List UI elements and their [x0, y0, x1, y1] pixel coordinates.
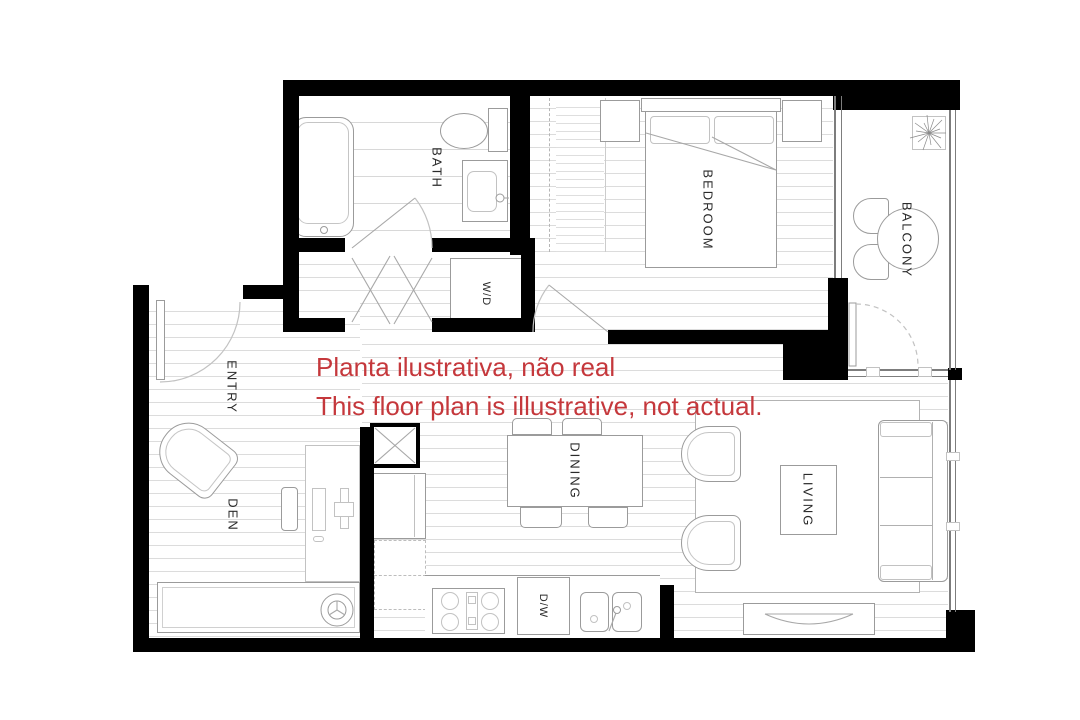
wall-bath-bottom-left	[283, 238, 345, 252]
living-window-mullion-2	[946, 522, 960, 531]
bathtub	[292, 117, 354, 237]
floor-plan: BATH BEDROOM BALCONY ENTRY DEN DINING LI…	[0, 0, 1080, 720]
pillow-left	[650, 116, 710, 144]
dining-chair-bottom-2	[588, 507, 628, 528]
sofa-armrest-bottom	[880, 565, 932, 580]
living-window-line-1	[949, 380, 951, 612]
balcony-bottom-window-line-1	[848, 369, 948, 371]
burner-1	[441, 592, 459, 610]
balcony-rail-line-2	[955, 110, 956, 370]
label-living: LIVING	[801, 473, 816, 528]
label-den: DEN	[226, 498, 241, 531]
wall-bath-closet	[510, 80, 530, 255]
closet-rod-dashed-line	[549, 98, 550, 252]
sofa-back-line	[932, 422, 933, 580]
sink-basin-left	[580, 592, 609, 632]
nightstand-left	[600, 100, 640, 142]
balcony-floor	[848, 332, 948, 380]
burner-2	[441, 613, 459, 631]
dining-chair-bottom-1	[520, 507, 562, 528]
toilet-tank	[488, 108, 508, 152]
wall-bedroom-bottom	[608, 330, 783, 344]
burner-4	[481, 613, 499, 631]
disclaimer-line-1: Planta ilustrativa, não real	[316, 352, 615, 383]
pillow-right	[714, 116, 774, 144]
label-bedroom: BEDROOM	[701, 169, 716, 250]
bedroom-balcony-window-line-1	[834, 96, 836, 278]
balcony-bottom-window-line-2	[848, 376, 948, 377]
desk-mouse	[313, 536, 324, 542]
balcony-window-mullion-2	[918, 367, 932, 377]
desk-monitor	[312, 488, 326, 531]
nightstand-right	[782, 100, 822, 142]
label-dining: DINING	[568, 442, 583, 500]
wall-bottom	[133, 638, 975, 652]
living-armchair-1	[681, 426, 741, 482]
sofa-cushion-line-2	[880, 525, 932, 526]
balcony-window-mullion-1	[866, 367, 880, 377]
wall-kitchen-divider	[660, 585, 674, 638]
den-credenza	[157, 582, 360, 633]
sink-drain-right	[623, 602, 631, 610]
wall-top	[283, 80, 833, 96]
entry-door-leaf	[156, 300, 165, 380]
counter-dashed-line	[374, 575, 426, 576]
sink-drain-left	[590, 615, 598, 623]
label-washer-dryer: W/D	[480, 282, 492, 306]
bed-headboard	[641, 98, 781, 112]
living-window-line-2	[955, 380, 956, 612]
disclaimer-line-2: This floor plan is illustrative, not act…	[316, 391, 763, 422]
fridge-door-line	[414, 475, 415, 537]
tv-console	[743, 603, 875, 635]
desk-chair	[281, 487, 298, 531]
toilet-bowl	[440, 113, 488, 149]
wall-bedroom-balcony-a	[828, 278, 848, 334]
wall-hall-bottom-right	[432, 318, 535, 332]
sink-basin-right	[612, 592, 642, 632]
burner-3	[481, 592, 499, 610]
stove-knob-2	[468, 617, 476, 625]
wall-hall-bottom-left	[283, 318, 345, 332]
label-balcony: BALCONY	[900, 202, 915, 278]
wall-bottom-right-block	[946, 610, 975, 638]
sofa-armrest-top	[880, 422, 932, 437]
bedroom-balcony-window-line-2	[841, 96, 842, 278]
plant-pot	[912, 116, 946, 150]
label-bath: BATH	[430, 147, 445, 189]
wall-top-right-block	[833, 80, 960, 110]
wall-left	[133, 285, 149, 652]
living-armchair-2	[681, 515, 741, 571]
sofa	[878, 420, 948, 582]
label-entry: ENTRY	[225, 360, 240, 414]
refrigerator	[368, 473, 426, 539]
closet-shelves	[556, 100, 604, 252]
sofa-cushion-line-1	[880, 477, 932, 478]
wall-wd-right	[521, 238, 535, 332]
balcony-rail-line-1	[949, 110, 951, 370]
wall-entry-top	[243, 285, 299, 299]
label-dishwasher: D/W	[537, 594, 549, 618]
living-window-mullion-1	[946, 452, 960, 461]
structural-column	[370, 423, 420, 468]
stove-knob-1	[468, 596, 476, 604]
bath-sink	[467, 171, 497, 212]
wall-den-divider	[360, 427, 374, 638]
wall-bedroom-balcony-b	[783, 330, 848, 380]
desk-lamp-arm	[334, 502, 354, 517]
